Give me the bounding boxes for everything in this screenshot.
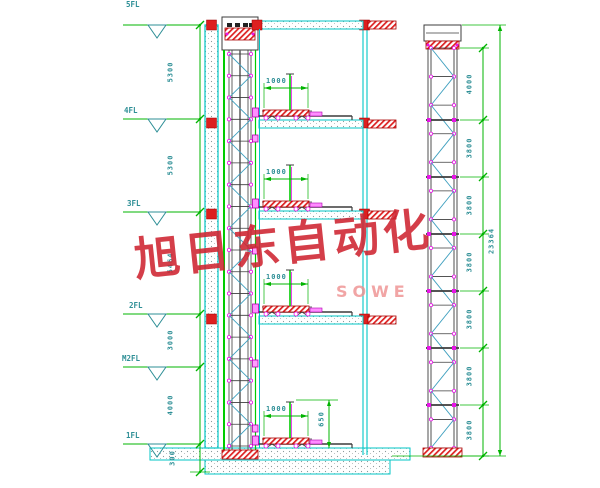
floor-label-3fl: 3FL: [127, 200, 141, 208]
dim-left-pit: 300: [170, 450, 177, 466]
dim-left-m2fl-1fl: 4000: [168, 395, 175, 416]
dim-overall-height: 23364: [489, 228, 496, 254]
dim-left-5fl-4fl: 5300: [168, 62, 175, 83]
dim-right-seg1: 4000: [467, 74, 474, 95]
floor-label-m2fl: M2FL: [122, 355, 140, 363]
dim-platform-width-1fl: 1000: [266, 406, 287, 413]
cad-drawing-elevator-elevation: 5FL 4FL 3FL 2FL M2FL 1FL 5300 5300 5464 …: [0, 0, 600, 488]
floor-label-5fl: 5FL: [126, 1, 140, 9]
dim-right-seg7: 3800: [467, 420, 474, 441]
dim-right-seg6: 3800: [467, 366, 474, 387]
dim-right-seg2: 3800: [467, 138, 474, 159]
dim-left-2fl-m2fl: 3000: [168, 330, 175, 351]
right-dimension-chain: [460, 44, 489, 460]
dim-right-seg4: 3800: [467, 252, 474, 273]
ground-foundation: [150, 448, 410, 474]
watermark-brand: SOWE: [336, 282, 410, 301]
dim-right-seg5: 3800: [467, 309, 474, 330]
dim-pit-height: 650: [319, 411, 326, 427]
dim-left-4fl-3fl: 5300: [168, 155, 175, 176]
floor-label-2fl: 2FL: [129, 302, 143, 310]
dim-platform-width-4fl: 1000: [266, 78, 287, 85]
dim-platform-width-3fl: 1000: [266, 169, 287, 176]
floor-label-1fl: 1FL: [126, 432, 140, 440]
floor-label-4fl: 4FL: [124, 107, 138, 115]
dim-right-seg3: 3800: [467, 195, 474, 216]
